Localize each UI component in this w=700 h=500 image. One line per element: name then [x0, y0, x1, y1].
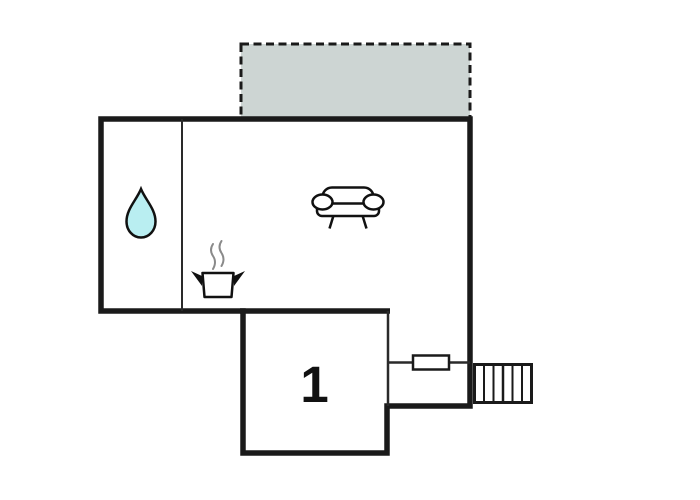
floor-plan-canvas: 1	[0, 0, 700, 500]
terrace-area	[241, 44, 470, 119]
floor-plan: 1	[0, 0, 700, 500]
bedroom-number-label: 1	[300, 356, 328, 413]
stairs-icon	[475, 365, 532, 403]
building-outline	[101, 119, 470, 453]
door-window-icon	[413, 356, 449, 370]
